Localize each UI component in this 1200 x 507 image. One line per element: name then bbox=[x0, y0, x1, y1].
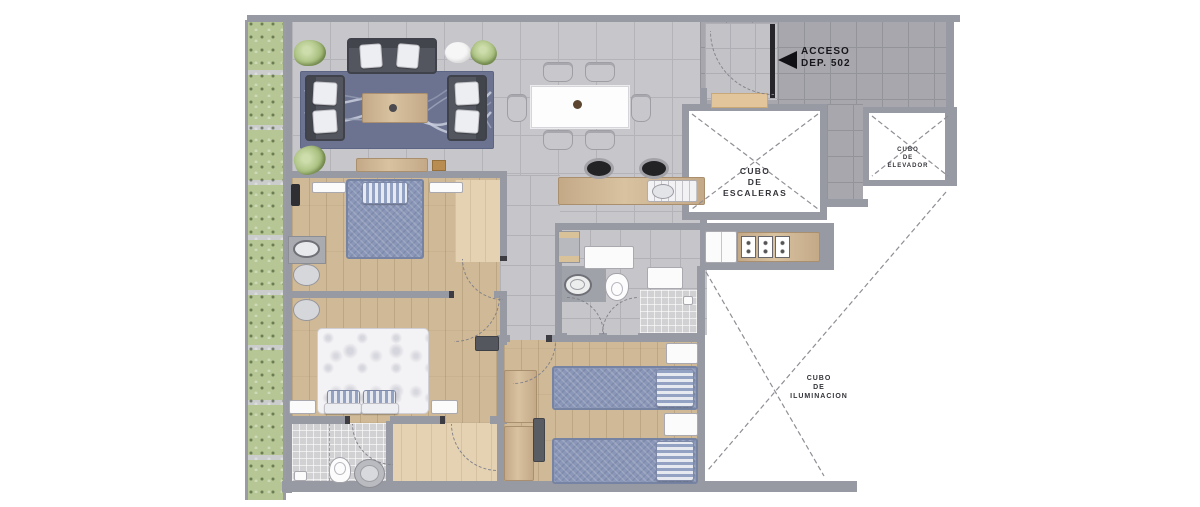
bench bbox=[475, 336, 499, 351]
elevator-label: CUBO DE ELEVADOR bbox=[869, 147, 947, 170]
dining-chair bbox=[585, 62, 615, 82]
round-sink-bowl bbox=[360, 465, 379, 482]
access-arrow-icon bbox=[778, 51, 797, 69]
armchair-pillow bbox=[312, 81, 337, 105]
side-cabinet bbox=[432, 160, 446, 171]
dining-chair bbox=[585, 130, 615, 150]
wall-toilet bbox=[293, 299, 320, 321]
light-shaft-label-line2: DE bbox=[773, 383, 865, 392]
armchair-pillow bbox=[454, 81, 479, 105]
nightstand bbox=[431, 400, 458, 414]
floor-plan: ACCESO DEP. 502 CUBO DE ESCALERAS CUBO D… bbox=[0, 0, 1200, 507]
wall-bedroom1-master bbox=[286, 291, 453, 298]
small-cabinet bbox=[558, 231, 580, 263]
stairs-label-line1: CUBO bbox=[692, 166, 818, 177]
sofa-pillow bbox=[359, 43, 383, 68]
bar-stool bbox=[584, 158, 614, 179]
coffee-table-decor bbox=[389, 104, 397, 112]
toilet bbox=[605, 273, 629, 301]
door-jamb bbox=[500, 256, 507, 261]
sofa-pillow bbox=[396, 43, 420, 69]
wall-hall-vert-upper bbox=[500, 171, 507, 261]
bathroom-sink bbox=[564, 274, 592, 296]
master-pillow-under bbox=[324, 403, 362, 414]
light-shaft-label-line1: CUBO bbox=[773, 374, 865, 383]
master-pillow-under bbox=[361, 403, 399, 414]
ottoman bbox=[444, 41, 472, 64]
single-bed-2-pillow bbox=[656, 441, 694, 481]
shower-drain bbox=[683, 296, 693, 305]
toilet-seat bbox=[611, 282, 623, 296]
stove-burner bbox=[741, 236, 756, 258]
access-label: ACCESO DEP. 502 bbox=[801, 46, 881, 69]
tv bbox=[291, 184, 300, 206]
desk bbox=[504, 426, 534, 481]
round-sink bbox=[354, 459, 385, 488]
hallway-floor bbox=[500, 175, 560, 345]
wall-bathroom-top bbox=[555, 223, 707, 230]
elevator-label-line1: CUBO bbox=[869, 147, 947, 155]
dining-centerpiece bbox=[573, 100, 582, 109]
wall-bathroom-bottom-c bbox=[638, 333, 705, 340]
dining-chair bbox=[507, 94, 527, 122]
nightstand bbox=[666, 343, 698, 364]
wall-corridor-bottom bbox=[827, 199, 868, 207]
light-shaft-label-line3: ILUMINACION bbox=[773, 392, 865, 401]
nightstand bbox=[664, 413, 698, 436]
wall-bathroom-bottom-b bbox=[599, 333, 607, 340]
wall-toilet bbox=[293, 264, 320, 286]
door-jamb bbox=[440, 416, 445, 424]
console-table bbox=[356, 158, 428, 172]
corridor-floor-strip bbox=[827, 104, 863, 207]
door-jamb bbox=[449, 291, 454, 298]
wall-master-bath-b bbox=[390, 416, 445, 424]
access-label-line2: DEP. 502 bbox=[801, 58, 881, 70]
desk-chair bbox=[533, 418, 545, 462]
laundry-unit bbox=[584, 246, 634, 269]
door-jamb bbox=[345, 416, 350, 424]
bath-cabinet bbox=[647, 267, 683, 289]
access-label-line1: ACCESO bbox=[801, 46, 881, 58]
wall-bedroom1-top bbox=[286, 171, 507, 178]
bar-stool bbox=[639, 158, 669, 179]
armchair-pillow bbox=[454, 109, 480, 134]
stairs-label: CUBO DE ESCALERAS bbox=[692, 166, 818, 199]
stairs-label-line3: ESCALERAS bbox=[692, 188, 818, 199]
elevator-label-line3: ELEVADOR bbox=[869, 163, 947, 171]
dining-chair bbox=[631, 94, 651, 122]
sink-inner bbox=[570, 279, 585, 290]
wall-bedroom2-right bbox=[697, 266, 705, 487]
kitchen-sink bbox=[647, 180, 698, 202]
stairs-label-line2: DE bbox=[692, 177, 818, 188]
wall-closet-bedroom2-vert bbox=[497, 335, 504, 487]
bedroom1-vanity-sink bbox=[293, 240, 320, 258]
bedroom1-shelf bbox=[429, 182, 463, 193]
dining-chair bbox=[543, 130, 573, 150]
bath-shelf bbox=[294, 471, 307, 481]
wall-top bbox=[247, 15, 960, 22]
stove-burner bbox=[775, 236, 790, 258]
elevator-label-line2: DE bbox=[869, 155, 947, 163]
dining-chair bbox=[543, 62, 573, 82]
stove-burner bbox=[758, 236, 773, 258]
single-bed-1-pillow bbox=[656, 369, 694, 407]
armchair-pillow bbox=[312, 109, 338, 134]
light-shaft-label: CUBO DE ILUMINACION bbox=[773, 374, 865, 401]
planter-strip bbox=[245, 20, 286, 500]
fridge bbox=[705, 231, 737, 263]
doormat bbox=[711, 93, 768, 108]
wall-bathroom-bottom-a bbox=[555, 333, 567, 340]
door-jamb bbox=[546, 335, 552, 342]
bedroom1-pillow bbox=[362, 182, 408, 204]
bedroom1-shelf bbox=[312, 182, 346, 193]
toilet bbox=[329, 457, 351, 483]
toilet-seat bbox=[334, 462, 346, 475]
nightstand bbox=[289, 400, 316, 414]
sink-basin bbox=[652, 184, 674, 199]
